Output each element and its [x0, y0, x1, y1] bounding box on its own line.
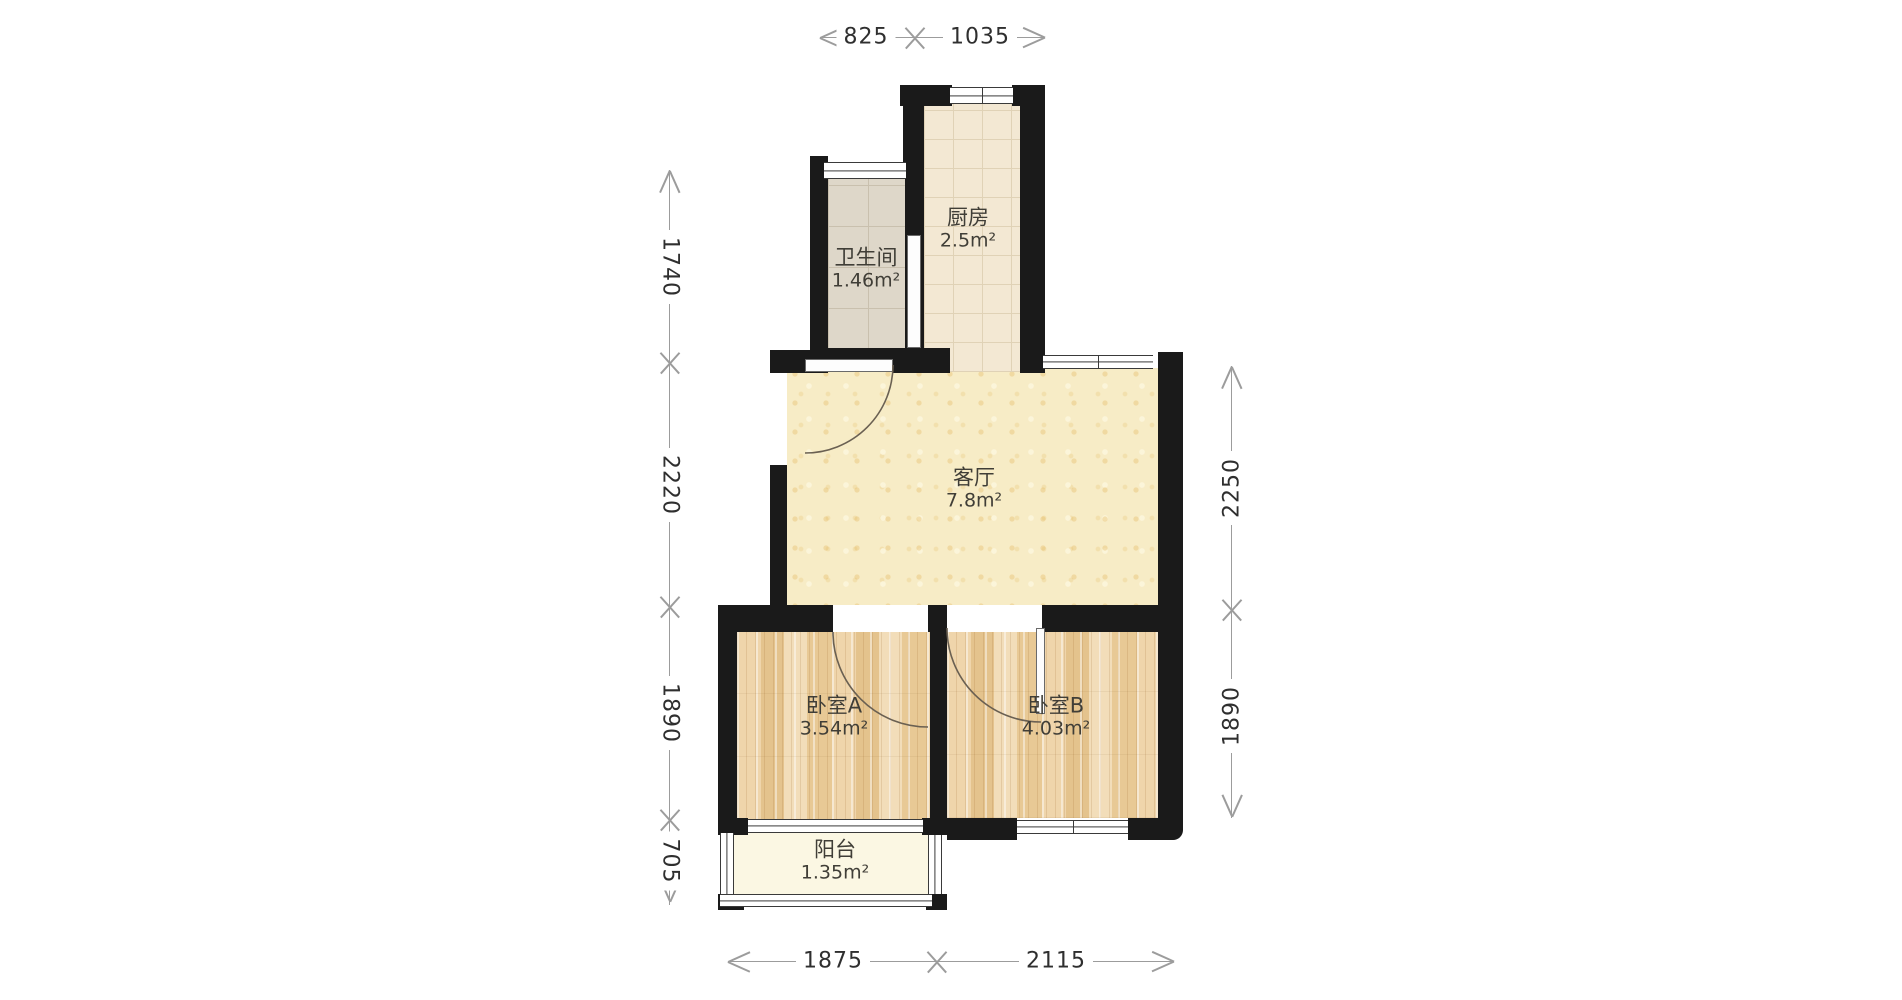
balcony-window-bottom: [720, 894, 932, 907]
bedroom-b-window: [1017, 820, 1128, 834]
kitchen-label: 厨房 2.5m²: [940, 207, 996, 252]
bedroom-a-area: 3.54m²: [800, 718, 868, 739]
entrance-door-leaf: [805, 359, 893, 372]
balcony-area: 1.35m²: [801, 862, 869, 883]
dim-left-2: 2220: [658, 448, 683, 522]
kitchen-name: 厨房: [940, 207, 996, 231]
bathroom-left-wall: [810, 156, 828, 363]
dim-right-1: 2250: [1220, 451, 1245, 525]
living-right-wall: [1158, 352, 1183, 612]
bathroom-door-leaf: [907, 235, 921, 348]
dim-tick-left-2: [656, 593, 684, 621]
bedroom-a-door-opening: [833, 605, 928, 632]
bathroom-label: 卫生间 1.46m²: [832, 247, 900, 292]
dim-left-4: 705: [658, 832, 683, 891]
dim-tick-bottom-mid: [923, 948, 951, 976]
balcony-window-right: [928, 835, 942, 894]
bedroom-a-name: 卧室A: [800, 695, 868, 719]
floor-plan: 厨房 2.5m² 卫生间 1.46m² 客厅 7.8m² 卧室A 3.54m² …: [0, 0, 1902, 1000]
kitchen-area: 2.5m²: [940, 230, 996, 251]
bedroom-a-sill-right: [922, 818, 947, 835]
kitchen-window: [950, 87, 1013, 104]
bedroom-a-label: 卧室A 3.54m²: [800, 695, 868, 740]
bedroom-divider-wall: [930, 605, 947, 835]
dim-top-1: 825: [837, 25, 896, 50]
living-room-name: 客厅: [946, 467, 1002, 491]
dim-line-bottom: [728, 961, 1174, 962]
bedroom-b-door-opening: [947, 605, 1042, 632]
dim-tick-top-mid: [901, 24, 929, 52]
living-room-area: 7.8m²: [946, 490, 1002, 511]
dim-right-2: 1890: [1220, 679, 1245, 753]
living-left-wall: [770, 465, 787, 610]
balcony-window-left: [720, 833, 734, 896]
bedroom-b-area: 4.03m²: [1022, 718, 1090, 739]
bedroom-b-label: 卧室B 4.03m²: [1022, 695, 1090, 740]
balcony-name: 阳台: [801, 839, 869, 863]
bedroom-b-bottom-wall-right: [1128, 818, 1183, 840]
dim-tick-right-mid: [1218, 596, 1246, 624]
dim-top-2: 1035: [943, 25, 1017, 50]
dim-bottom-1: 1875: [796, 949, 870, 974]
entry-right-wall: [893, 348, 950, 373]
balcony-sliding-door: [748, 819, 923, 833]
bedroom-b-name: 卧室B: [1022, 695, 1090, 719]
balcony-label: 阳台 1.35m²: [801, 839, 869, 884]
bedroom-a-left-wall: [718, 605, 737, 835]
living-room-window: [1043, 355, 1153, 369]
bedroom-b-right-wall: [1158, 605, 1183, 840]
dim-left-1: 1740: [658, 230, 683, 304]
bathroom-name: 卫生间: [832, 247, 900, 271]
dim-tick-left-1: [656, 349, 684, 377]
dim-tick-left-3: [656, 806, 684, 834]
living-room-label: 客厅 7.8m²: [946, 467, 1002, 512]
kitchen-left-wall: [903, 85, 924, 168]
kitchen-right-wall: [1020, 85, 1045, 373]
bathroom-window: [824, 162, 906, 179]
dim-left-3: 1890: [658, 676, 683, 750]
dim-bottom-2: 2115: [1019, 949, 1093, 974]
bedroom-b-bottom-wall-left: [947, 818, 1017, 840]
bathroom-area: 1.46m²: [832, 270, 900, 291]
